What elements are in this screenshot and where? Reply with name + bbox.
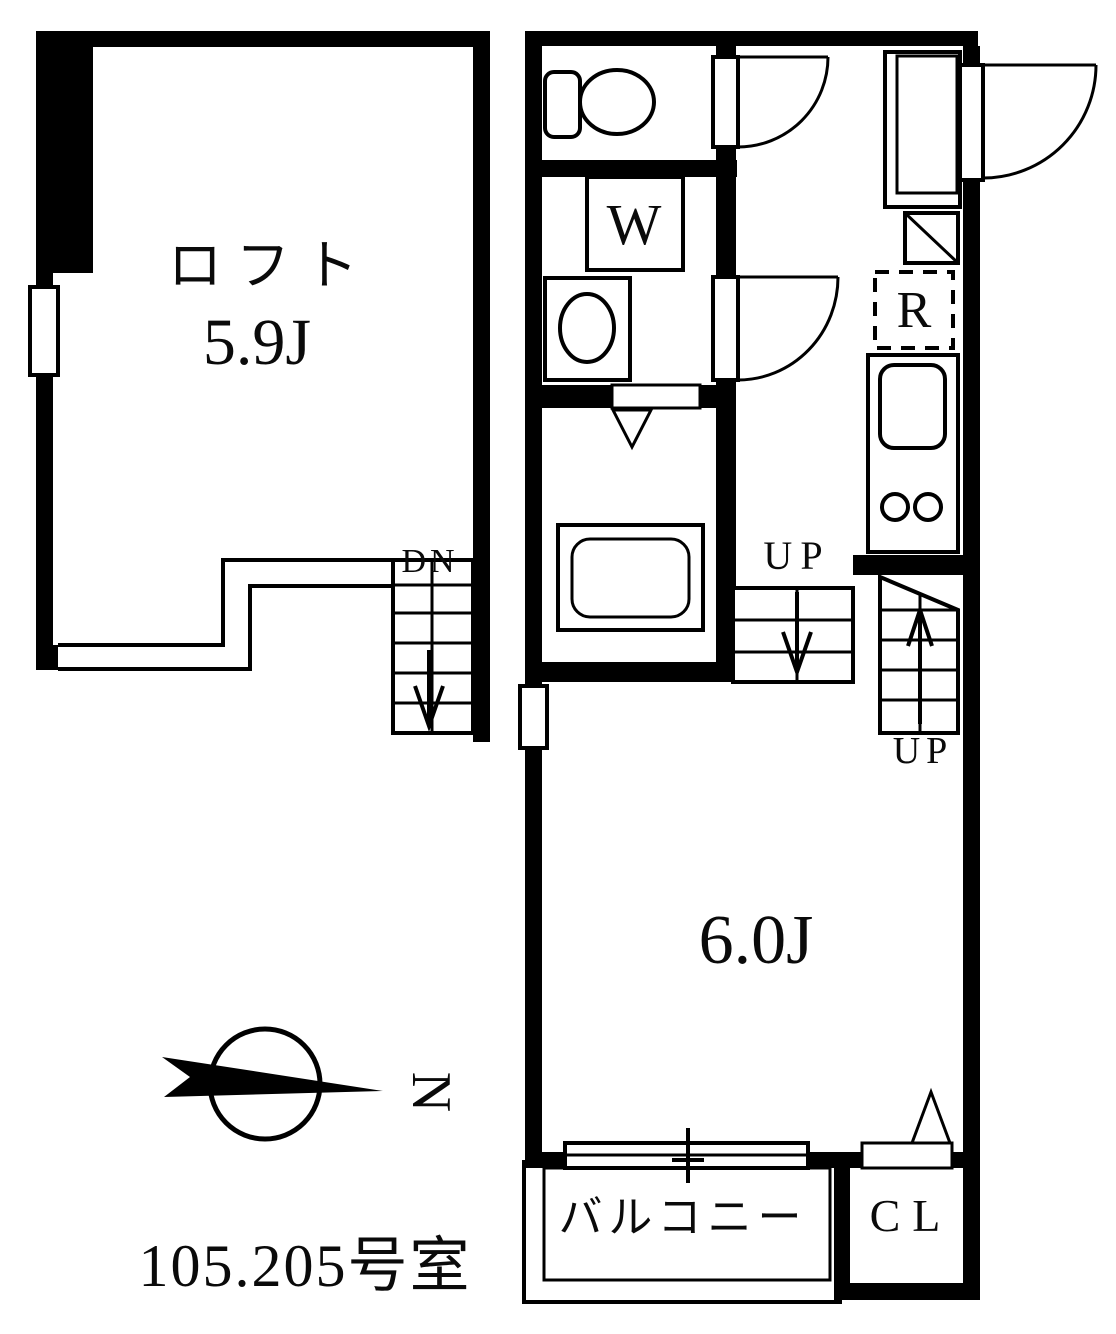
closet-label: CL	[870, 1193, 953, 1239]
stairs-up-upper-label: UP	[893, 732, 954, 770]
balcony-label: バルコニー	[558, 1196, 807, 1240]
bathtub-icon	[558, 525, 703, 630]
bathroom-folding-door-icon	[612, 385, 700, 447]
loft-dn-stairs-icon	[393, 560, 473, 733]
loft-edge-line	[58, 560, 393, 669]
floorplan-drawing	[0, 0, 1116, 1334]
washroom-door-icon	[713, 277, 838, 380]
floorplan: ロフト 5.9J DN W R UP UP 6.0J バルコニー CL N 10…	[0, 0, 1116, 1334]
main-room-size-label: 6.0J	[699, 906, 814, 976]
entrance-door-icon	[958, 65, 1096, 180]
stairs-dn-label: DN	[401, 545, 458, 579]
closet-folding-door-icon	[862, 1092, 952, 1168]
loft-room-label: ロフト	[168, 239, 372, 293]
washbasin-icon	[545, 278, 630, 380]
stairs-up-lower-icon	[733, 588, 853, 682]
refrigerator-label: R	[897, 285, 932, 337]
loft-size-label: 5.9J	[203, 310, 311, 376]
stairs-up-upper-icon	[880, 577, 958, 733]
washing-machine-label: W	[607, 196, 662, 254]
stairs-up-lower-label: UP	[763, 536, 830, 576]
toilet-door-icon	[713, 57, 828, 147]
loft-window-icon	[30, 287, 58, 375]
main-room-window-icon	[520, 686, 547, 748]
shoe-cabinet-icon	[885, 52, 960, 207]
unit-number-label: 105.205号室	[139, 1236, 472, 1296]
toilet-icon	[545, 70, 654, 137]
kitchen-counter-icon	[868, 355, 958, 552]
corner-shelf-icon	[905, 213, 958, 263]
compass-north-label: N	[403, 1072, 459, 1112]
compass-icon	[162, 1029, 383, 1139]
